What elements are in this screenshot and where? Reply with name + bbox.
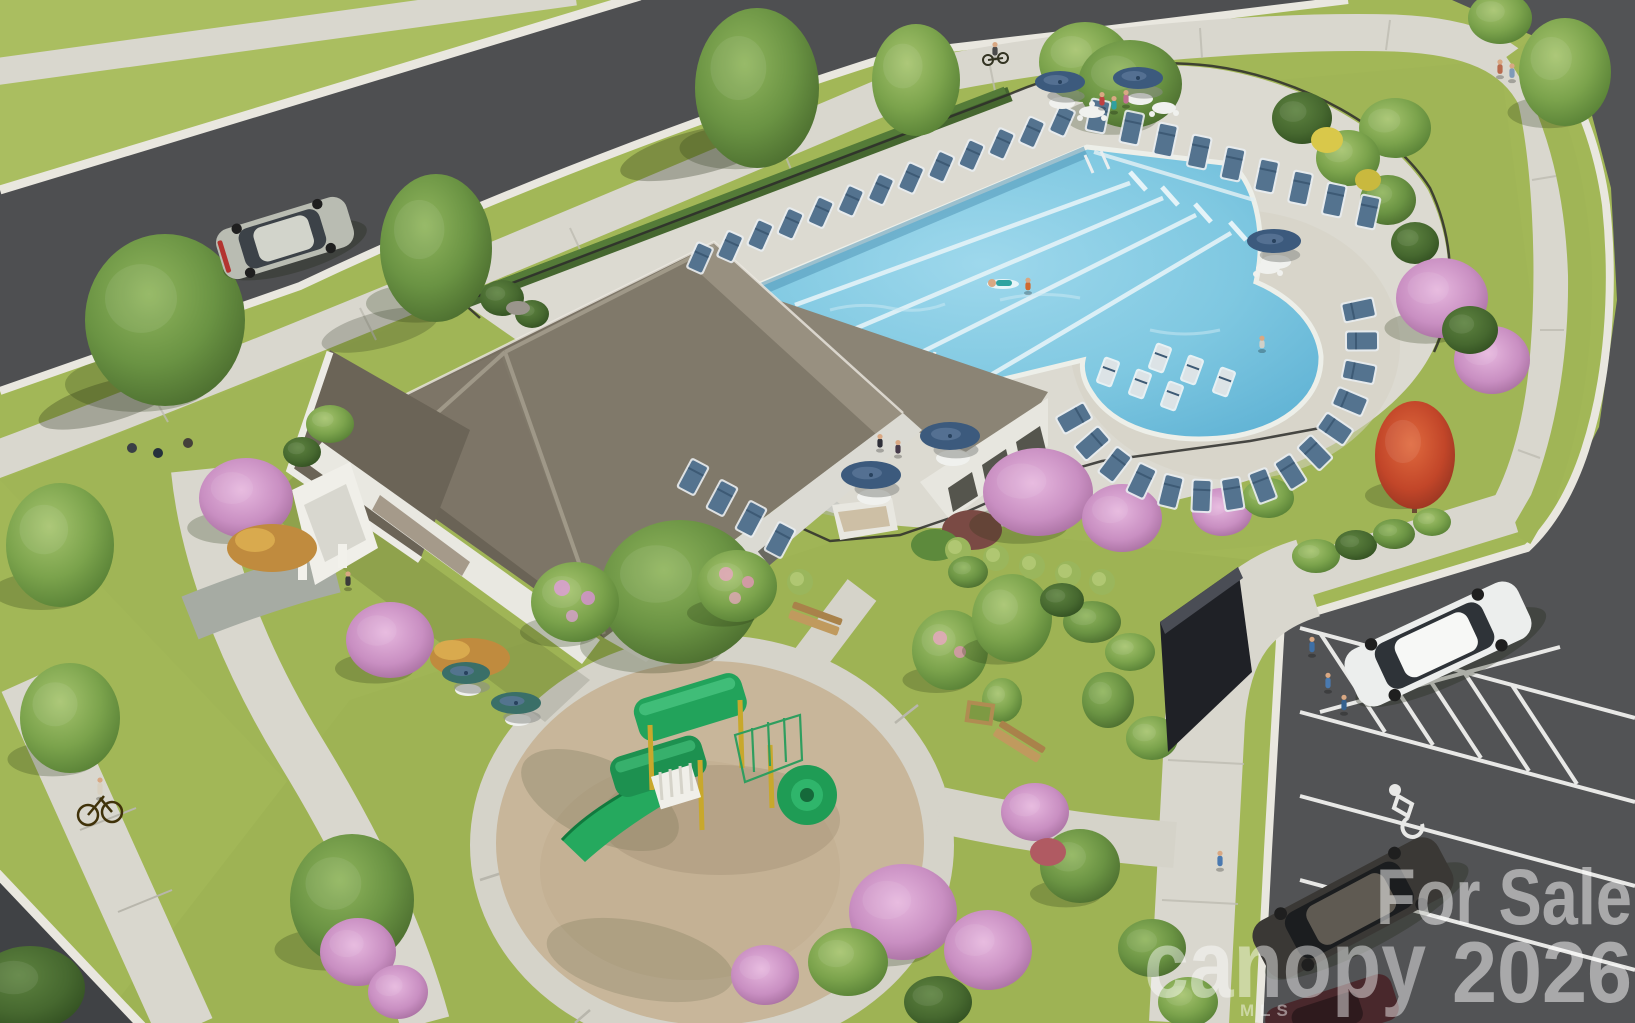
svg-text:MLS: MLS [1240,1001,1294,1020]
svg-text:2026: 2026 [1452,925,1632,1021]
